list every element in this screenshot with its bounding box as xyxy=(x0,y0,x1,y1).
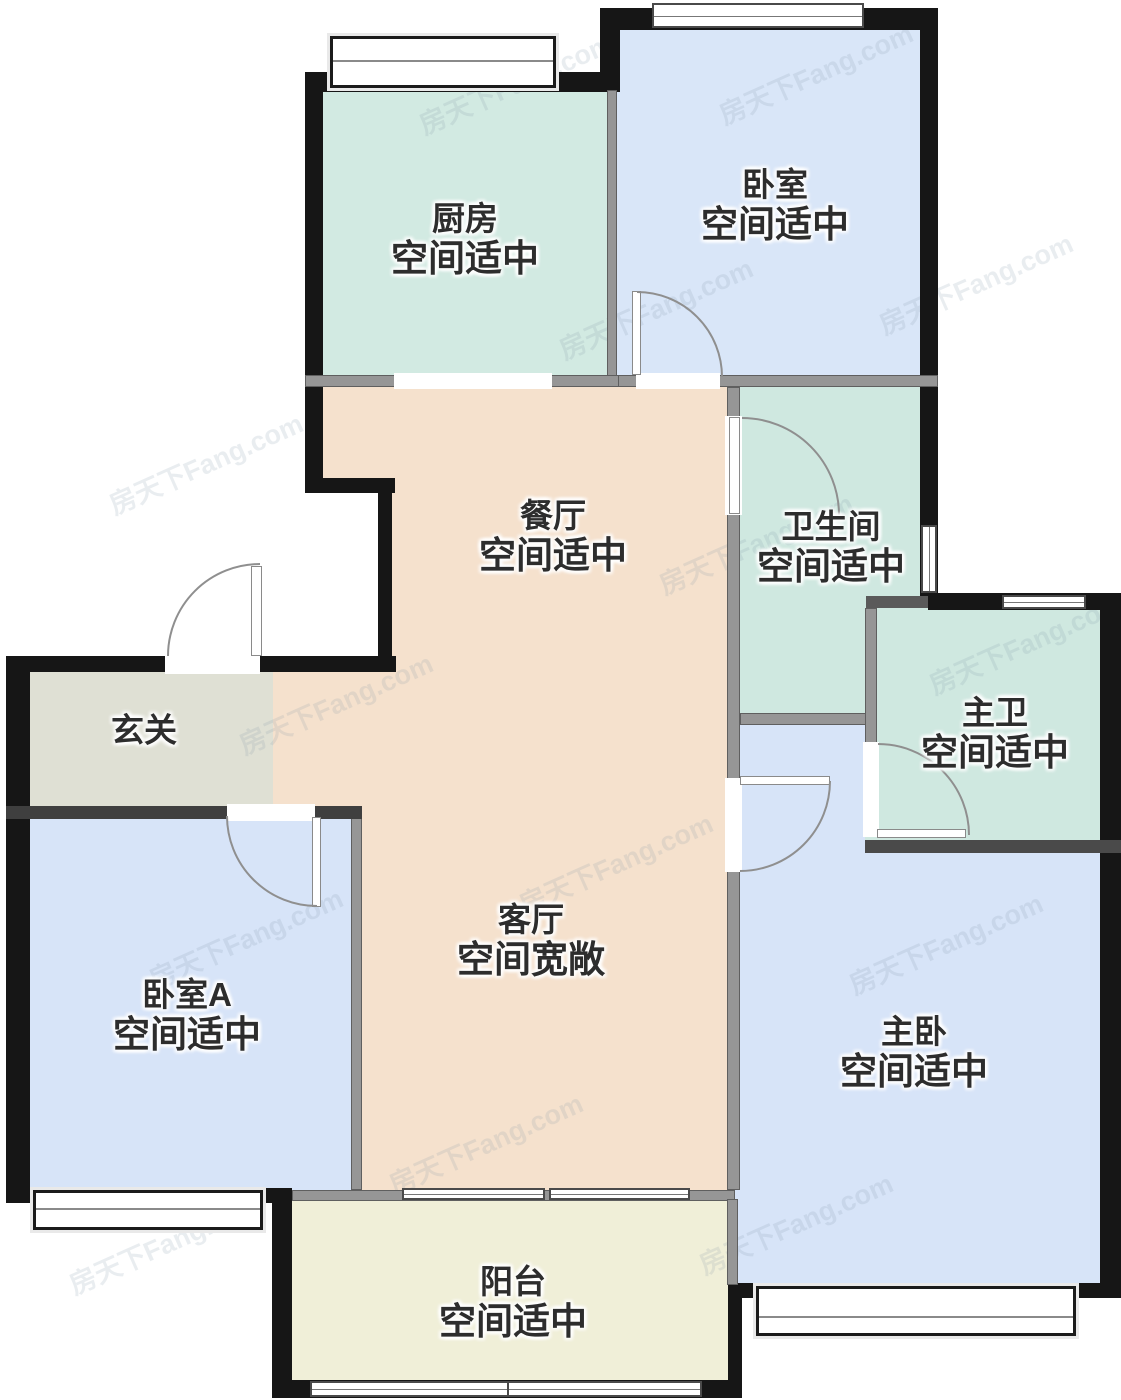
wall xyxy=(865,608,877,745)
watermark: 房天下Fang.com xyxy=(102,402,308,522)
entrance-door-arc xyxy=(168,564,260,656)
room-name: 主卧 xyxy=(840,1014,988,1051)
window-bedroom-a xyxy=(33,1190,263,1230)
room-name: 卫生间 xyxy=(757,509,905,546)
room-living-floor xyxy=(356,810,738,1195)
room-condition: 空间适中 xyxy=(113,1014,261,1055)
room-condition: 空间适中 xyxy=(757,546,905,587)
wall xyxy=(920,8,938,608)
wall xyxy=(1100,593,1121,1298)
room-name: 厨房 xyxy=(391,201,539,238)
room-condition: 空间适中 xyxy=(391,238,539,279)
room-name: 餐厅 xyxy=(479,498,627,535)
room-condition: 空间宽敞 xyxy=(457,939,605,980)
room-bedroom-label: 卧室 空间适中 xyxy=(701,167,849,245)
window-kitchen xyxy=(330,36,556,88)
room-condition: 空间适中 xyxy=(439,1301,587,1342)
wall xyxy=(6,806,228,819)
window-bedroom xyxy=(652,3,864,28)
window-living-balcony xyxy=(549,1188,690,1200)
entrance-door-leaf xyxy=(251,566,262,656)
doorway-master-bedroom xyxy=(725,778,742,872)
room-name: 卧室A xyxy=(113,977,261,1014)
room-name: 卧室 xyxy=(701,167,849,204)
window-balcony-rail xyxy=(310,1381,702,1397)
wall xyxy=(740,713,870,725)
wall xyxy=(378,478,392,670)
doorway-master-bath xyxy=(863,742,879,837)
room-condition: 空间适中 xyxy=(921,732,1069,773)
wall xyxy=(865,840,1121,853)
master-bedroom-door-leaf xyxy=(740,776,830,785)
window-master-bedroom xyxy=(756,1286,1076,1336)
room-name: 客厅 xyxy=(457,902,605,939)
room-dining-label: 餐厅 空间适中 xyxy=(479,498,627,576)
room-foyer-label: 玄关 xyxy=(111,713,177,750)
room-condition: 空间适中 xyxy=(479,535,627,576)
bedroom-door-leaf xyxy=(632,291,641,375)
doorway-bedroom xyxy=(636,373,720,389)
wall xyxy=(6,656,30,1203)
wall xyxy=(305,72,323,490)
wall xyxy=(727,1199,738,1285)
window-living-balcony xyxy=(402,1188,545,1200)
window-bathroom xyxy=(921,525,937,593)
doorway-entrance xyxy=(165,652,260,674)
wall xyxy=(728,1283,742,1395)
wall xyxy=(607,90,617,380)
wall xyxy=(315,806,362,819)
wall xyxy=(351,806,362,1190)
bathroom-door-leaf xyxy=(729,417,740,514)
wall xyxy=(272,1190,292,1398)
floorplan-canvas: 房天下Fang.com 房天下Fang.com 房天下Fang.com 房天下F… xyxy=(0,0,1121,1400)
room-condition: 空间适中 xyxy=(701,204,849,245)
room-kitchen-label: 厨房 空间适中 xyxy=(391,201,539,279)
doorway-kitchen xyxy=(394,373,552,389)
room-master-bedroom-label: 主卧 空间适中 xyxy=(840,1014,988,1092)
window-master-bath xyxy=(1002,595,1086,609)
room-name: 阳台 xyxy=(439,1264,587,1301)
room-bedroom-a-label: 卧室A 空间适中 xyxy=(113,977,261,1055)
master-bath-door-leaf xyxy=(877,829,966,838)
room-dining-floor xyxy=(272,670,738,815)
room-bathroom-label: 卫生间 空间适中 xyxy=(757,509,905,587)
room-master-bath-label: 主卫 空间适中 xyxy=(921,695,1069,773)
room-living-label: 客厅 空间宽敞 xyxy=(457,902,605,980)
room-condition: 空间适中 xyxy=(840,1051,988,1092)
wall xyxy=(866,596,928,608)
bedroom-a-door-leaf xyxy=(312,817,321,907)
doorway-bedroom-a xyxy=(227,804,315,821)
room-name: 玄关 xyxy=(111,713,177,750)
room-balcony-label: 阳台 空间适中 xyxy=(439,1264,587,1342)
room-dining-floor xyxy=(308,385,738,490)
room-name: 主卫 xyxy=(921,695,1069,732)
